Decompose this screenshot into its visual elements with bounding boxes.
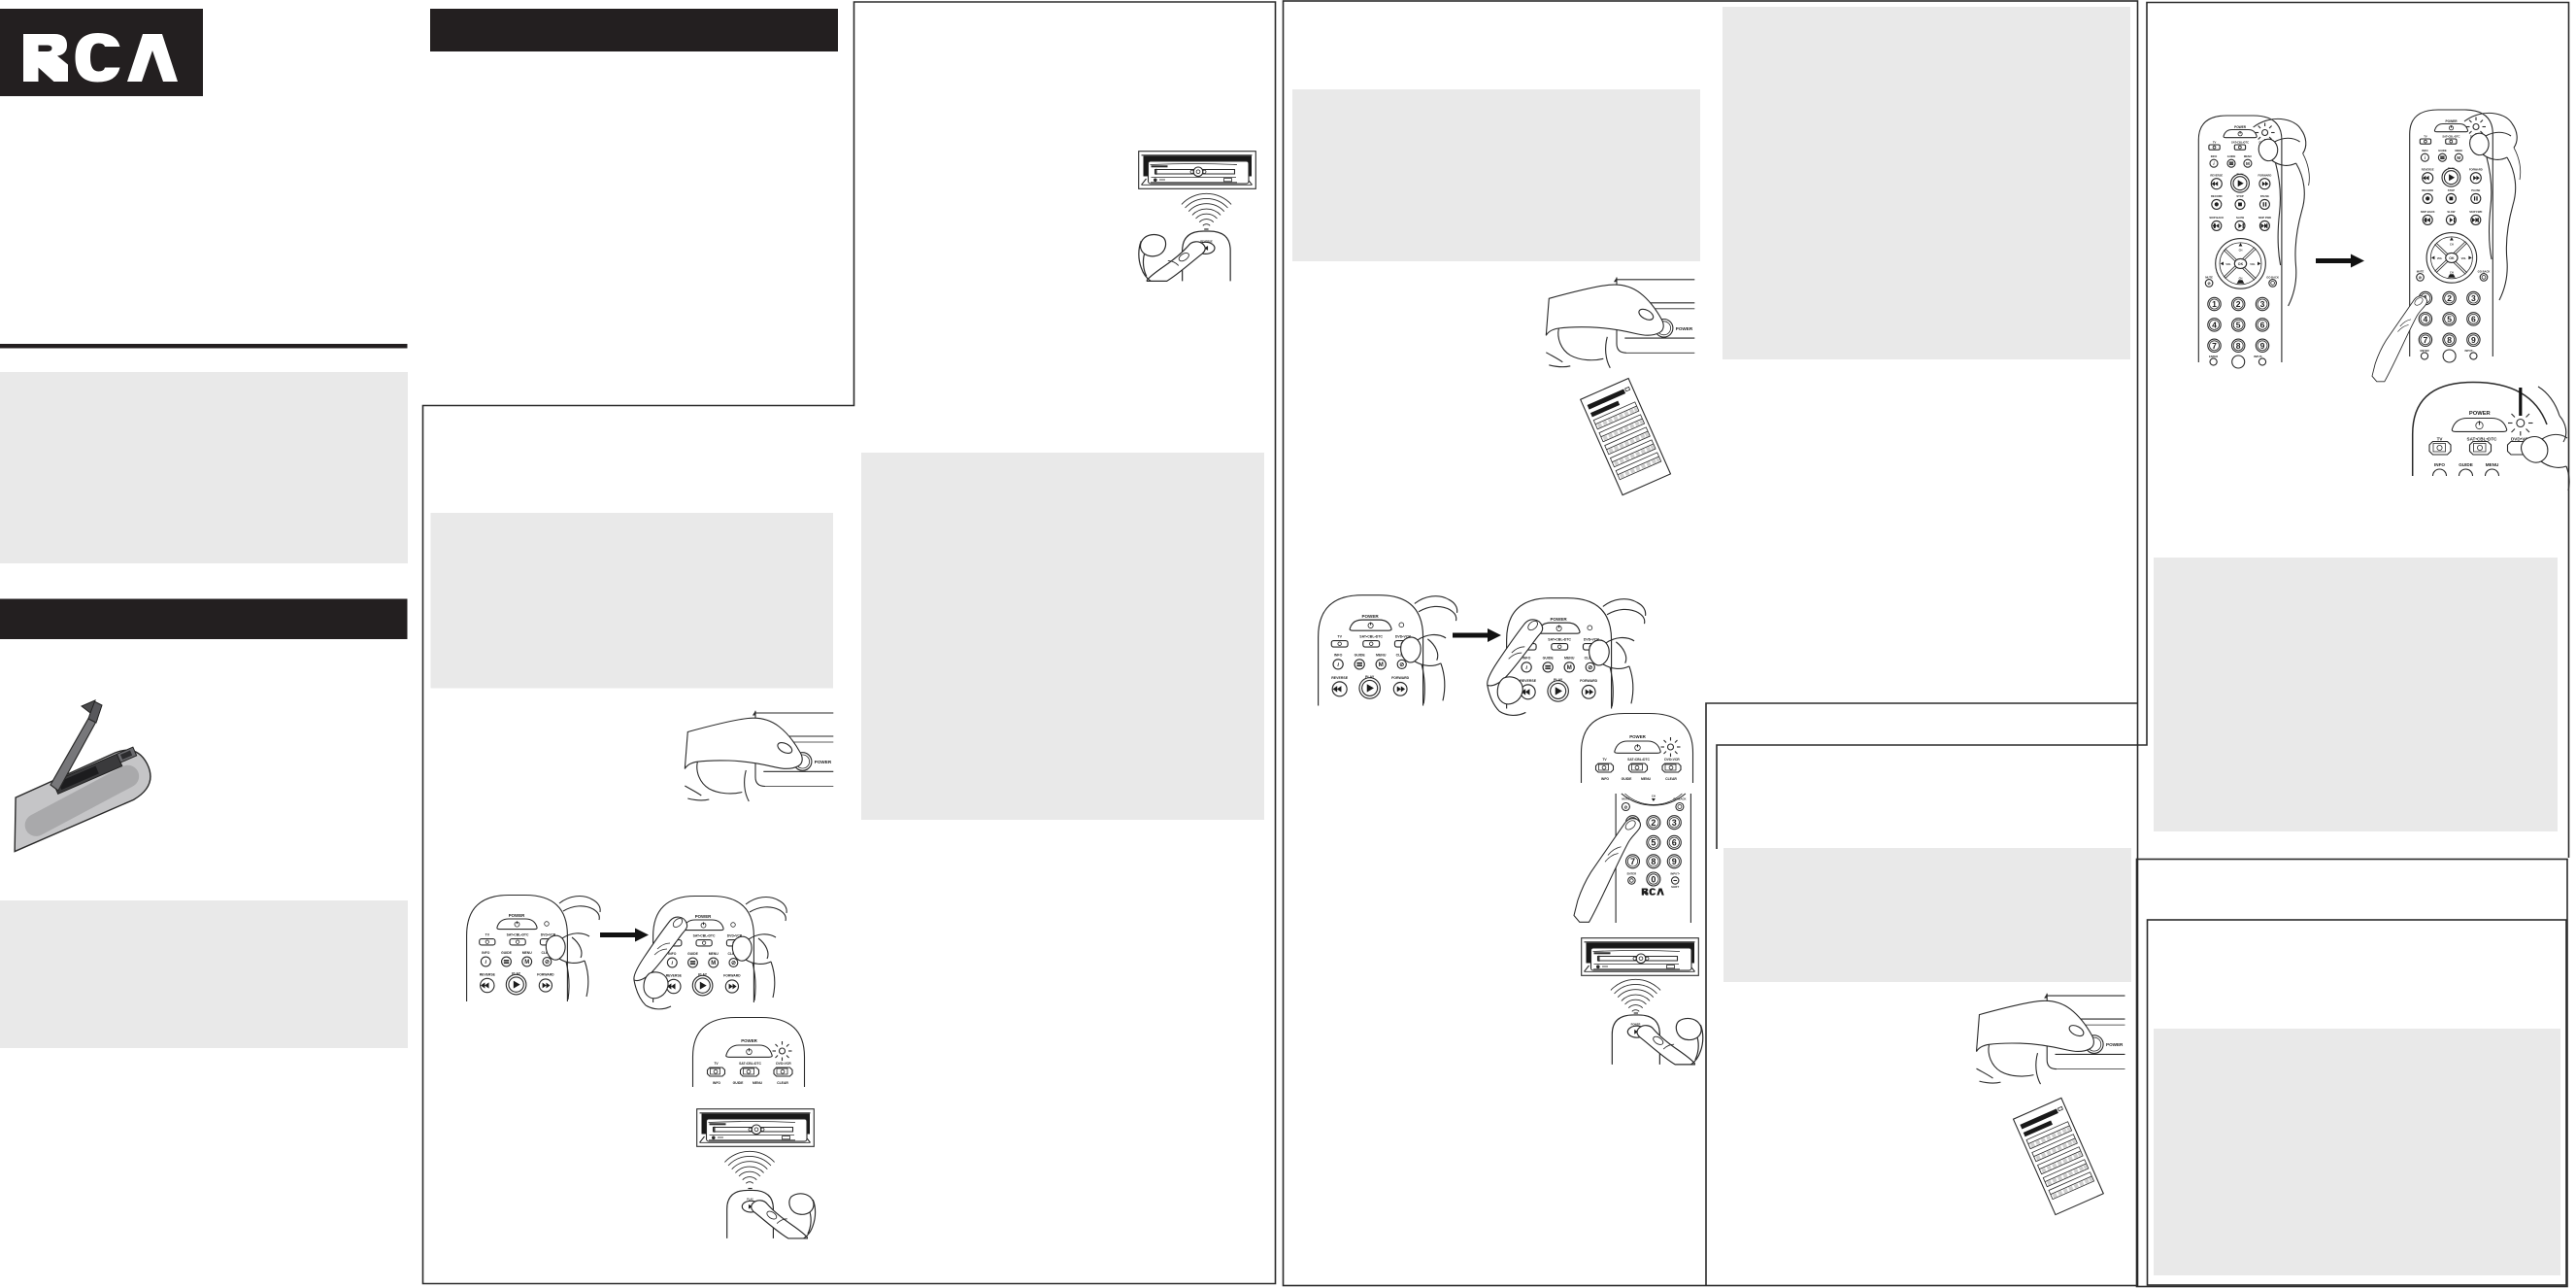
svg-text:SAT•CBL•DTC: SAT•CBL•DTC: [2467, 436, 2498, 441]
svg-text:TV: TV: [2437, 436, 2444, 441]
svg-text:PLAY: PLAY: [747, 1198, 753, 1202]
svg-text:MENU: MENU: [2486, 462, 2499, 467]
svg-text:POWER: POWER: [2469, 411, 2492, 417]
svg-text:INFO: INFO: [2434, 462, 2445, 467]
svg-text:GUIDE: GUIDE: [2459, 462, 2473, 467]
svg-text:POWER: POWER: [1631, 1023, 1641, 1027]
svg-text:REVERSE: REVERSE: [1200, 240, 1213, 244]
